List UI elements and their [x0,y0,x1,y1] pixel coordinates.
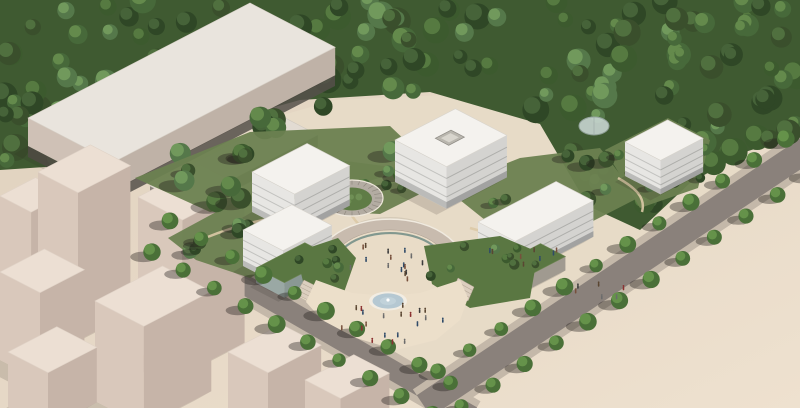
render-canvas [0,0,800,408]
fountain [369,292,407,311]
architectural-render [0,0,800,408]
